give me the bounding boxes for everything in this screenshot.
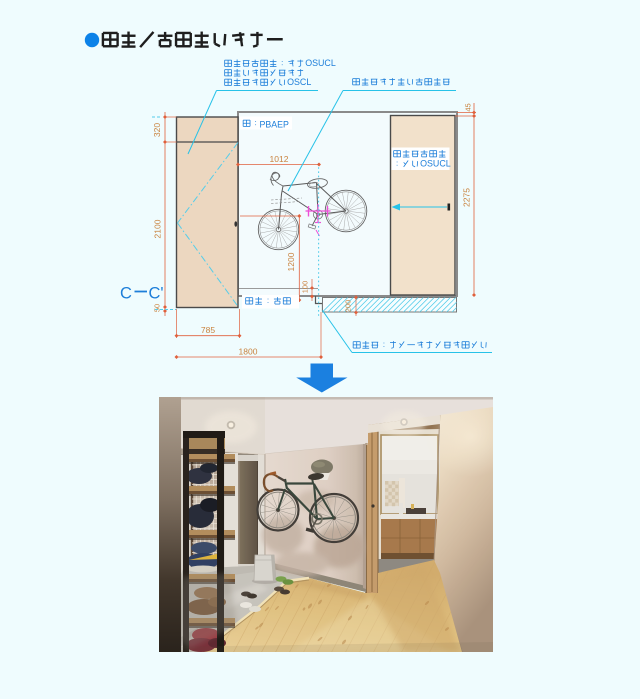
svg-text:320: 320 — [152, 123, 162, 137]
svg-text:785: 785 — [201, 325, 215, 335]
svg-text:2100: 2100 — [153, 219, 163, 238]
svg-text:1800: 1800 — [239, 347, 258, 357]
svg-text:PBAEP: PBAEP — [260, 119, 289, 129]
svg-text:OSCL: OSCL — [287, 77, 311, 87]
svg-text:100: 100 — [301, 281, 310, 294]
svg-text:1200: 1200 — [286, 252, 296, 271]
svg-text:OSUCL: OSUCL — [420, 159, 451, 169]
svg-text:C: C — [120, 285, 132, 303]
svg-text:200: 200 — [344, 300, 353, 313]
svg-text:45: 45 — [464, 103, 473, 111]
svg-text:OSUCL: OSUCL — [305, 58, 336, 68]
svg-text:2275: 2275 — [462, 188, 472, 207]
svg-text:50: 50 — [153, 304, 162, 312]
svg-text:C': C' — [149, 285, 164, 303]
svg-text:1012: 1012 — [270, 154, 289, 164]
